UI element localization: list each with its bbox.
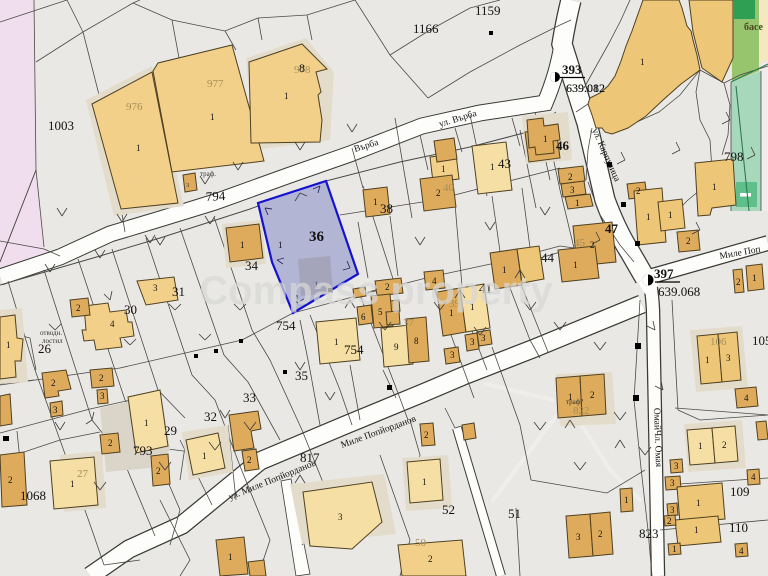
svg-text:50: 50	[415, 537, 427, 549]
svg-text:отводн.: отводн.	[40, 329, 62, 337]
svg-text:46: 46	[556, 138, 570, 153]
svg-text:823: 823	[639, 526, 659, 541]
svg-text:798: 798	[724, 149, 744, 164]
svg-text:3: 3	[53, 405, 58, 415]
svg-text:1: 1	[136, 143, 141, 153]
svg-text:793: 793	[133, 443, 153, 458]
svg-text:1: 1	[70, 479, 75, 489]
svg-text:36: 36	[309, 229, 325, 245]
svg-text:2: 2	[686, 236, 691, 246]
svg-text:4: 4	[744, 393, 749, 403]
svg-text:2: 2	[598, 529, 603, 539]
svg-text:Compass property: Compass property	[199, 269, 553, 313]
svg-text:1: 1	[752, 273, 757, 283]
svg-text:976: 976	[126, 101, 143, 113]
svg-text:110: 110	[729, 520, 748, 535]
svg-text:2: 2	[247, 455, 252, 465]
svg-text:4: 4	[110, 319, 115, 329]
svg-text:1: 1	[373, 197, 378, 207]
svg-text:траф?: траф?	[566, 398, 583, 406]
svg-text:1: 1	[490, 162, 495, 172]
svg-text:2: 2	[76, 303, 81, 313]
svg-text:1: 1	[694, 525, 699, 535]
svg-text:3: 3	[576, 532, 581, 542]
svg-text:1: 1	[278, 240, 283, 250]
svg-text:8: 8	[414, 336, 419, 346]
svg-text:траф.: траф.	[200, 170, 216, 178]
svg-text:1: 1	[6, 340, 11, 350]
svg-text:3: 3	[674, 461, 679, 471]
svg-text:29: 29	[164, 423, 177, 438]
svg-text:1: 1	[228, 552, 233, 562]
svg-text:2: 2	[722, 440, 727, 450]
svg-text:4: 4	[751, 472, 756, 482]
svg-text:1: 1	[240, 240, 245, 250]
svg-text:3: 3	[153, 283, 158, 293]
svg-text:лостил: лостил	[42, 337, 63, 345]
svg-text:3: 3	[338, 512, 343, 522]
svg-text:1: 1	[698, 441, 703, 451]
svg-text:2: 2	[568, 172, 573, 182]
svg-text:1: 1	[202, 451, 207, 461]
svg-text:43: 43	[498, 156, 511, 171]
svg-text:1: 1	[441, 164, 446, 174]
svg-text:3: 3	[470, 337, 475, 347]
svg-text:ОмайЧл. Омая: ОмайЧл. Омая	[651, 408, 664, 468]
svg-text:45: 45	[574, 237, 586, 249]
svg-text:3: 3	[186, 182, 189, 189]
svg-text:2: 2	[667, 516, 672, 526]
svg-text:8: 8	[299, 61, 305, 75]
svg-text:754: 754	[276, 318, 296, 333]
svg-text:1: 1	[672, 544, 677, 554]
svg-text:1: 1	[640, 57, 645, 67]
svg-text:1: 1	[712, 182, 717, 192]
svg-text:1068: 1068	[20, 488, 46, 503]
svg-text:3: 3	[570, 185, 575, 195]
svg-text:1: 1	[575, 198, 580, 208]
svg-text:109: 109	[730, 484, 750, 499]
svg-text:822: 822	[573, 405, 590, 417]
svg-text:2: 2	[590, 240, 595, 250]
svg-text:794: 794	[205, 188, 226, 204]
svg-text:3: 3	[450, 350, 455, 360]
svg-text:2: 2	[428, 554, 433, 564]
svg-text:1003: 1003	[48, 118, 74, 133]
svg-text:106: 106	[710, 336, 727, 348]
svg-text:32: 32	[204, 409, 217, 424]
svg-text:3: 3	[726, 353, 731, 363]
svg-text:2: 2	[8, 475, 13, 485]
svg-text:754: 754	[344, 342, 364, 357]
svg-text:639.068: 639.068	[658, 284, 700, 299]
svg-text:52: 52	[442, 502, 455, 517]
svg-text:1: 1	[696, 498, 701, 508]
svg-text:1: 1	[543, 134, 548, 144]
svg-text:47: 47	[605, 221, 619, 236]
svg-text:1: 1	[334, 337, 339, 347]
svg-text:37: 37	[403, 317, 415, 329]
svg-text:3: 3	[100, 391, 105, 401]
svg-text:2: 2	[590, 390, 595, 400]
svg-text:44: 44	[541, 250, 555, 265]
svg-text:105: 105	[752, 333, 768, 348]
svg-text:1159: 1159	[475, 3, 501, 18]
svg-text:27: 27	[77, 468, 89, 480]
svg-text:51: 51	[508, 506, 521, 521]
svg-text:38: 38	[380, 201, 393, 216]
svg-text:1: 1	[144, 418, 149, 428]
svg-text:3: 3	[670, 478, 675, 488]
svg-text:35: 35	[295, 368, 308, 383]
svg-text:2: 2	[51, 378, 56, 388]
svg-text:6: 6	[361, 312, 366, 322]
svg-text:2: 2	[424, 430, 429, 440]
svg-text:33: 33	[243, 390, 256, 405]
svg-text:2: 2	[99, 373, 104, 383]
svg-text:1: 1	[646, 212, 651, 222]
svg-text:1: 1	[573, 260, 578, 270]
svg-text:4: 4	[739, 546, 744, 556]
svg-text:393: 393	[562, 62, 582, 77]
svg-text:30: 30	[124, 302, 137, 317]
svg-text:3: 3	[481, 333, 486, 343]
svg-text:3: 3	[670, 505, 675, 515]
svg-text:1: 1	[705, 355, 710, 365]
svg-text:1: 1	[422, 477, 427, 487]
svg-text:2: 2	[736, 277, 741, 287]
svg-text:1: 1	[210, 112, 215, 122]
svg-text:басе: басе	[744, 22, 764, 33]
svg-text:1: 1	[624, 495, 629, 505]
svg-text:2: 2	[436, 188, 441, 198]
svg-text:397: 397	[654, 266, 674, 281]
svg-text:1166: 1166	[413, 21, 439, 36]
svg-text:977: 977	[207, 78, 224, 90]
svg-text:2: 2	[108, 438, 113, 448]
svg-text:2: 2	[156, 466, 161, 476]
svg-text:40: 40	[443, 182, 455, 194]
svg-text:639.082: 639.082	[566, 81, 605, 95]
svg-text:31: 31	[172, 284, 185, 299]
svg-text:9: 9	[394, 342, 399, 352]
svg-text:1: 1	[284, 91, 289, 101]
svg-text:1: 1	[668, 210, 673, 220]
svg-text:2: 2	[636, 186, 641, 196]
